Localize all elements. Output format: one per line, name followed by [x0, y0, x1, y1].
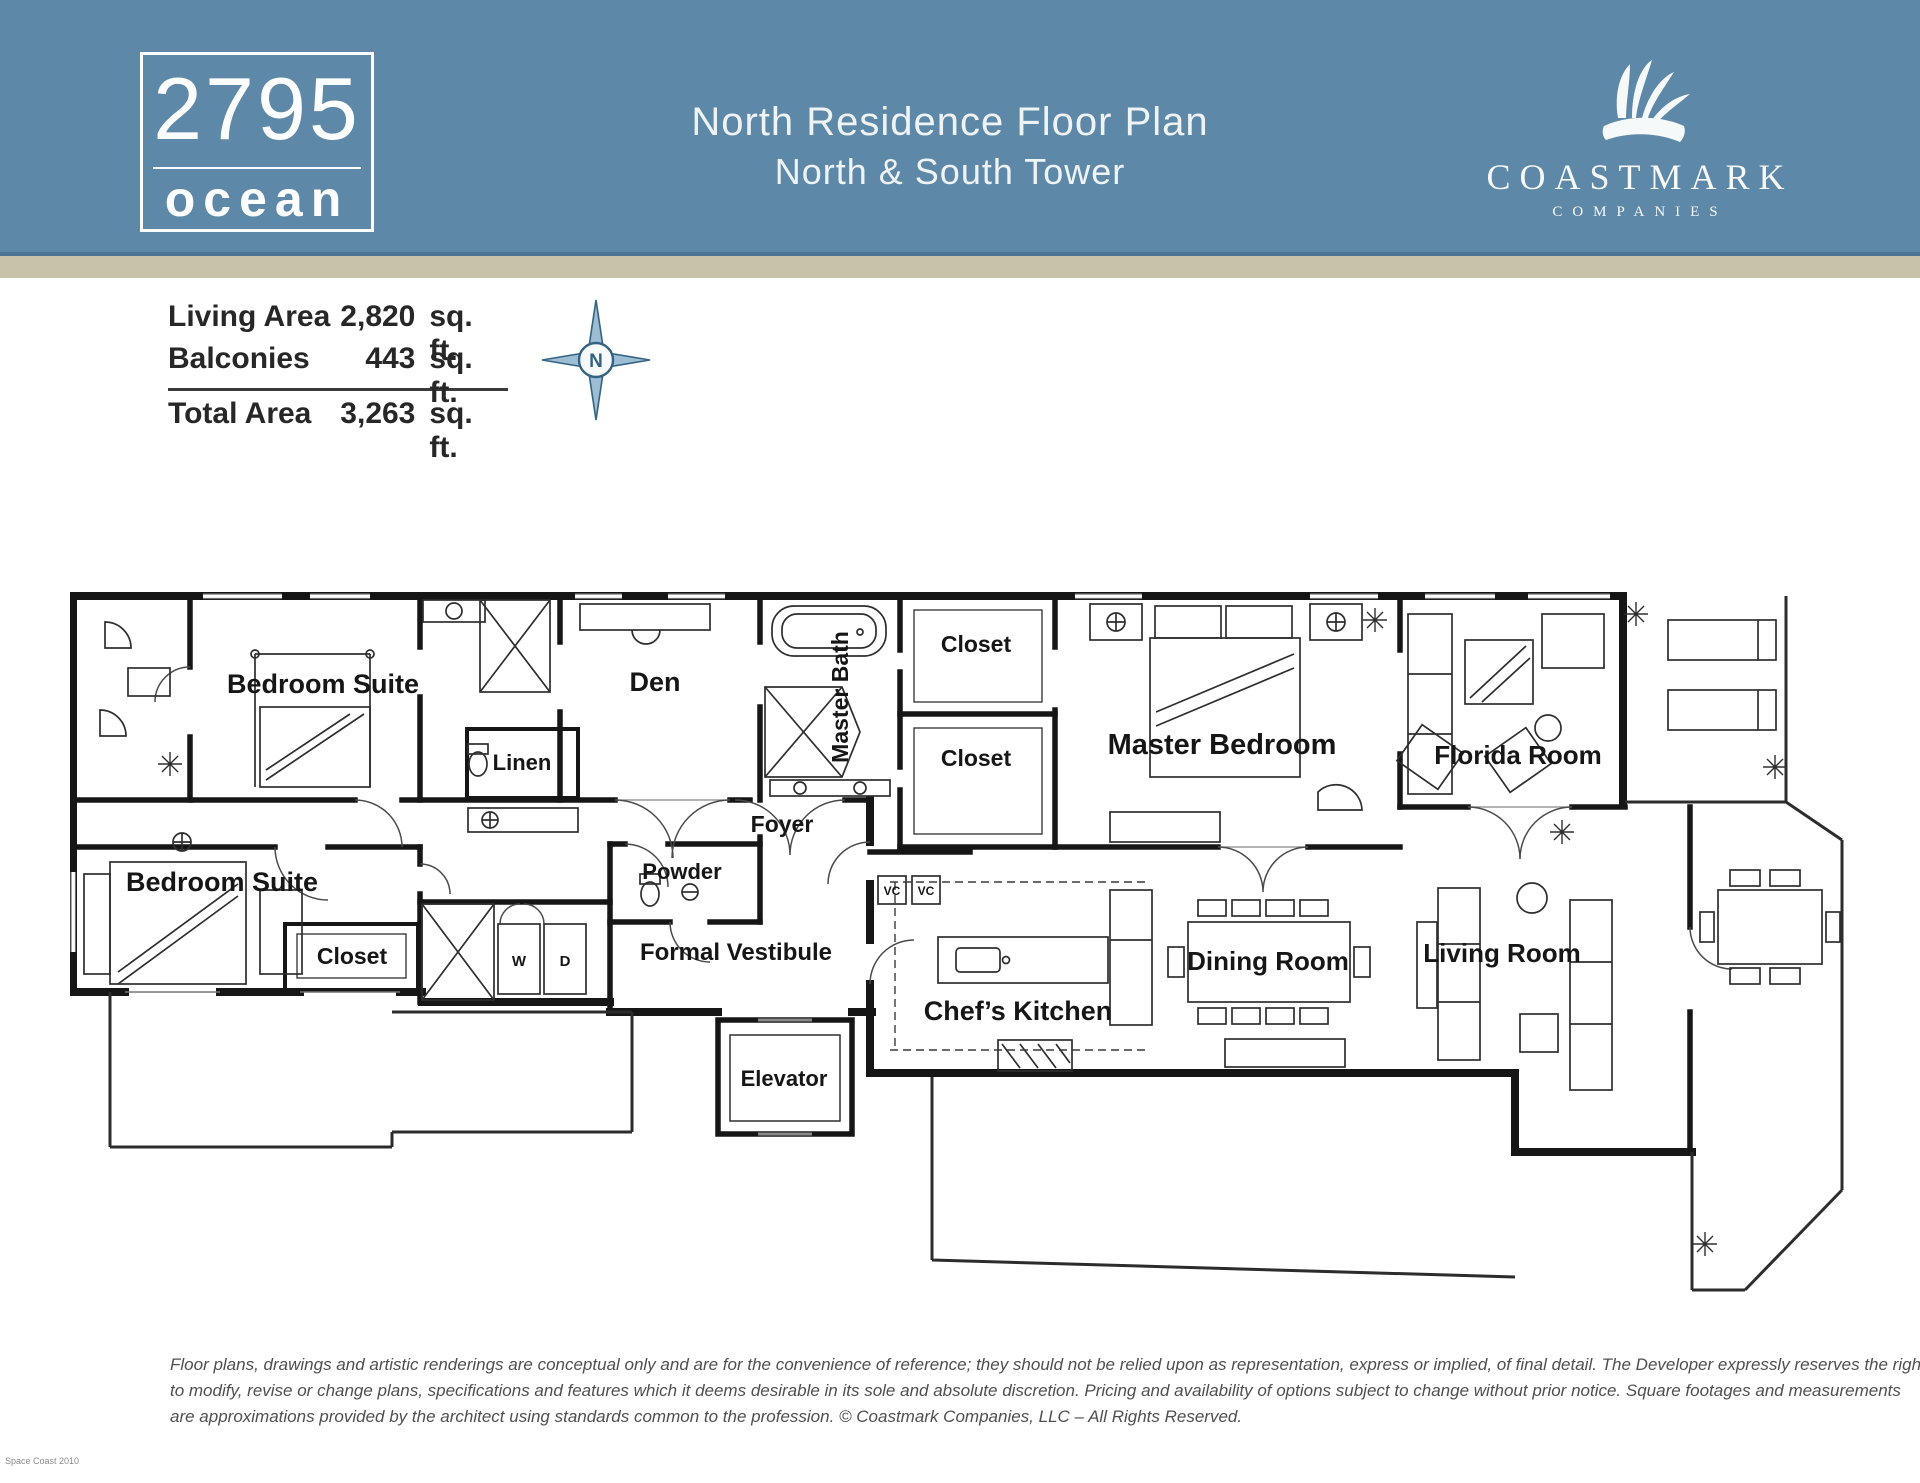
logo-number: 2795 — [143, 57, 371, 161]
room-label: Powder — [642, 859, 722, 884]
room-label: Closet — [941, 631, 1012, 657]
accent-stripe — [0, 256, 1920, 278]
disclaimer-line-1: Floor plans, drawings and artistic rende… — [170, 1352, 1810, 1378]
compass-north-label: N — [589, 351, 603, 372]
area-unit: sq. ft. — [415, 397, 508, 465]
area-value: 443 — [333, 342, 415, 376]
room-label: Living Room — [1423, 938, 1580, 968]
title-line-1: North Residence Floor Plan — [540, 100, 1360, 145]
area-row-total: Total Area 3,263 sq. ft. — [168, 397, 508, 439]
brand-name: COASTMARK — [1460, 156, 1820, 198]
room-label: Chef’s Kitchen — [924, 996, 1113, 1026]
area-label: Total Area — [168, 397, 333, 431]
room-label: Foyer — [751, 811, 814, 837]
brand-block: COASTMARK COMPANIES — [1460, 56, 1820, 221]
area-label: Balconies — [168, 342, 333, 376]
disclaimer-line-2: to modify, revise or change plans, speci… — [170, 1378, 1810, 1404]
floor-plan: Bedroom SuiteDenMaster BathClosetClosetM… — [70, 592, 1860, 1332]
page-title: North Residence Floor Plan North & South… — [540, 100, 1360, 193]
area-value: 2,820 — [333, 300, 415, 334]
page: 2795 ocean North Residence Floor Plan No… — [0, 0, 1920, 1483]
room-label: Master Bath — [827, 631, 853, 763]
area-row-balconies: Balconies 443 sq. ft. — [168, 342, 508, 384]
compass-rose-icon: N — [534, 298, 658, 422]
room-label: Elevator — [741, 1066, 828, 1091]
title-line-2: North & South Tower — [540, 151, 1360, 193]
room-label: W — [512, 953, 527, 970]
logo-word: ocean — [143, 171, 371, 227]
room-label: Bedroom Suite — [227, 669, 419, 699]
room-label: Formal Vestibule — [640, 939, 832, 966]
room-label: Linen — [493, 750, 552, 775]
area-label: Living Area — [168, 300, 333, 334]
plants — [158, 602, 1787, 1256]
room-label: Den — [629, 667, 680, 697]
shell-logo-icon — [1580, 56, 1700, 152]
area-row-living: Living Area 2,820 sq. ft. — [168, 300, 508, 342]
room-label: VC — [918, 884, 935, 898]
brand-subtitle: COMPANIES — [1460, 204, 1820, 221]
building-logo: 2795 ocean — [140, 52, 374, 232]
room-label: Master Bedroom — [1108, 729, 1337, 761]
room-label: Closet — [317, 943, 388, 969]
room-label: Closet — [941, 745, 1012, 771]
disclaimer-line-3: are approximations provided by the archi… — [170, 1404, 1810, 1430]
room-label: VC — [884, 884, 901, 898]
room-label: Florida Room — [1434, 740, 1602, 770]
area-summary: Living Area 2,820 sq. ft. Balconies 443 … — [168, 300, 508, 439]
room-label: Bedroom Suite — [126, 867, 318, 897]
area-value: 3,263 — [333, 397, 415, 431]
room-label: Dining Room — [1187, 946, 1349, 976]
logo-divider — [153, 167, 361, 169]
corner-note: Space Coast 2010 — [5, 1456, 79, 1466]
disclaimer: Floor plans, drawings and artistic rende… — [170, 1352, 1810, 1430]
room-label: D — [560, 953, 571, 970]
header-band: 2795 ocean North Residence Floor Plan No… — [0, 0, 1920, 256]
